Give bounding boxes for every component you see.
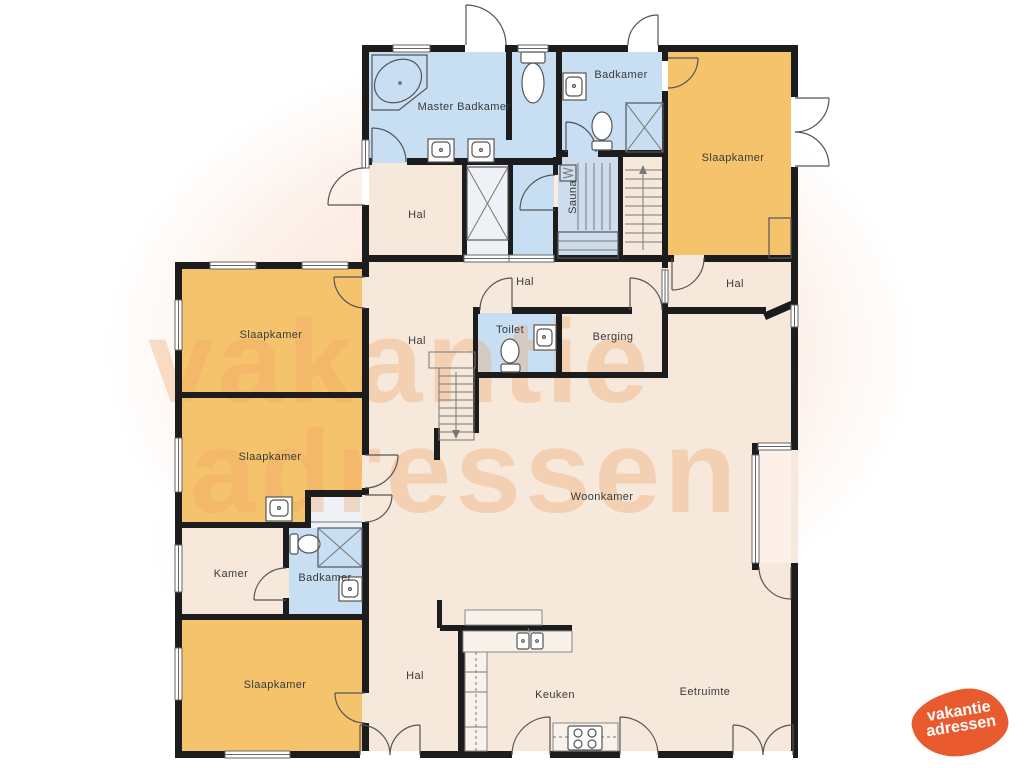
- room-label-hal-mid: Hal: [408, 335, 426, 347]
- room-label-eetruimte: Eetruimte: [680, 686, 731, 698]
- stove-icon: [568, 726, 602, 750]
- sink-icon-badkamer-top: [563, 73, 586, 100]
- room-label-hal-small: Hal: [516, 276, 534, 288]
- room-label-hal-tr: Hal: [726, 278, 744, 290]
- sink-icon-toilet: [534, 325, 556, 350]
- sink-icon-slaapkamer-l2: [266, 497, 292, 521]
- room-label-slaapkamer-l2: Slaapkamer: [239, 451, 302, 463]
- room-label-keuken: Keuken: [535, 689, 575, 701]
- room-label-berging: Berging: [593, 331, 634, 343]
- floorplan-drawing: vakantie adressen: [0, 0, 1024, 768]
- sink-icon-master-1: [428, 139, 454, 162]
- room-label-slaapkamer-bl: Slaapkamer: [244, 679, 307, 691]
- toilet-icon-master: [521, 52, 545, 103]
- floorplan-page: vakantie adressen: [0, 0, 1024, 768]
- toilet-icon-badkamer-top: [592, 112, 612, 150]
- room-label-badkamer-left: Badkamer: [298, 572, 351, 584]
- room-label-hal-top: Hal: [408, 209, 426, 221]
- toilet-icon-toiletroom: [501, 339, 520, 372]
- room-label-badkamer-top: Badkamer: [594, 69, 647, 81]
- vakantieadressen-logo: vakantie adressen: [912, 690, 1008, 756]
- room-label-woonkamer: Woonkamer: [571, 491, 634, 503]
- room-label-toilet: Toilet: [496, 324, 524, 336]
- sink-icon-master-2: [468, 139, 494, 162]
- room-label-sauna: Sauna: [567, 180, 579, 214]
- room-label-master-badkamer: Master Badkamer: [418, 101, 511, 113]
- room-label-slaapkamer-l1: Slaapkamer: [240, 329, 303, 341]
- room-label-slaapkamer-tr: Slaapkamer: [702, 152, 765, 164]
- room-label-kamer: Kamer: [214, 568, 248, 580]
- toilet-icon-badkamer-left: [290, 534, 320, 554]
- room-label-hal-bottom: Hal: [406, 670, 424, 682]
- watermark: vakantie adressen: [148, 296, 740, 538]
